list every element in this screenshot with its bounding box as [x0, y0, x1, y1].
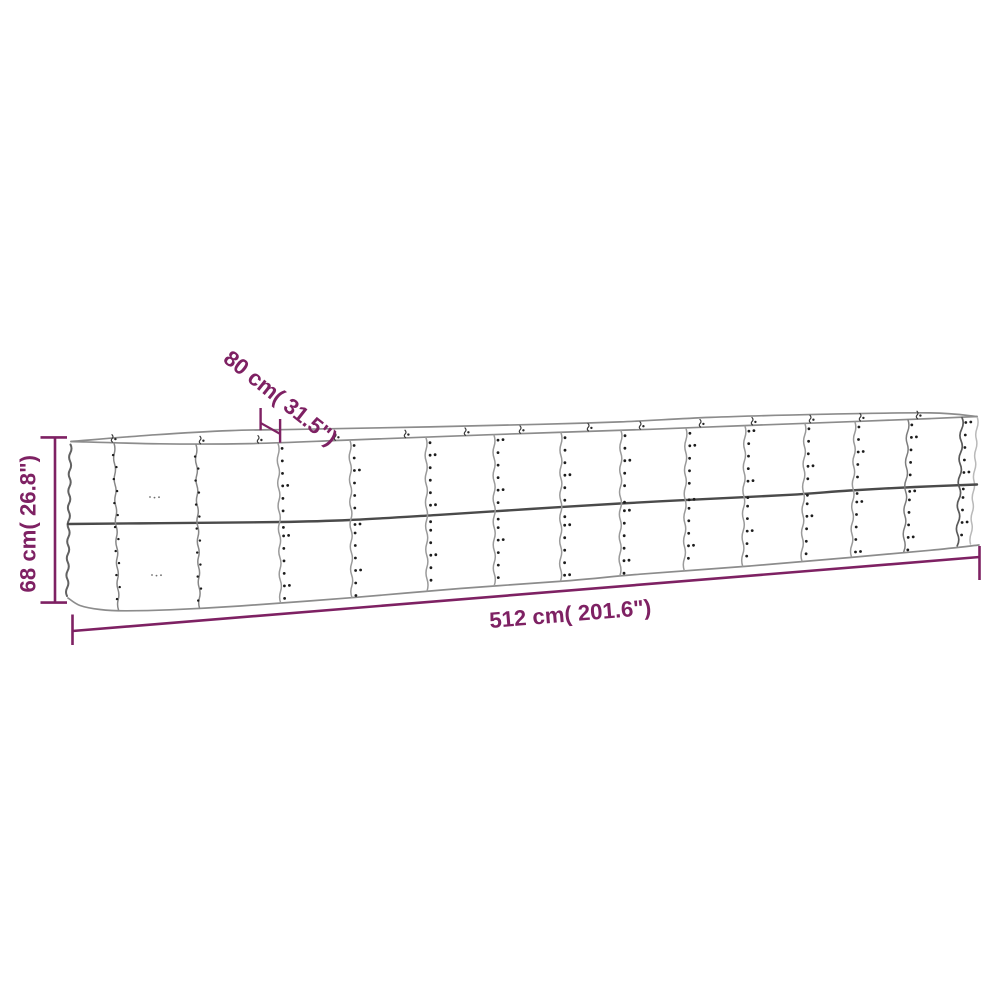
svg-text:68 cm( 26.8"): 68 cm( 26.8") — [16, 455, 41, 593]
